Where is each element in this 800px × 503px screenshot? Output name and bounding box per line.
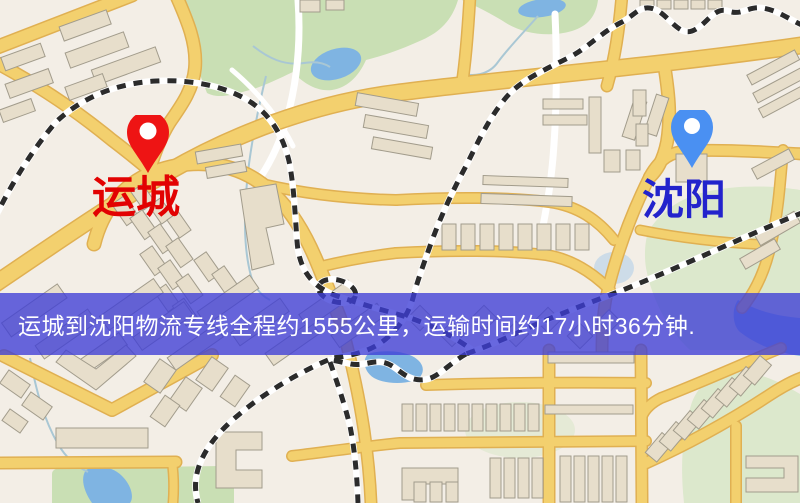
map-base-layer bbox=[0, 0, 800, 503]
destination-label: 沈阳 bbox=[642, 179, 726, 221]
origin-label: 运城 bbox=[92, 176, 180, 220]
destination-pin-icon[interactable] bbox=[669, 110, 715, 168]
route-info-banner: 运城到沈阳物流专线全程约1555公里，运输时间约17小时36分钟. bbox=[0, 293, 800, 355]
route-info-text: 运城到沈阳物流专线全程约1555公里，运输时间约17小时36分钟. bbox=[18, 307, 695, 341]
map-canvas[interactable]: 运城 沈阳 运城到沈阳物流专线全程约1555公里，运输时间约17小时36分钟. bbox=[0, 0, 800, 503]
origin-pin-icon[interactable] bbox=[125, 115, 171, 173]
